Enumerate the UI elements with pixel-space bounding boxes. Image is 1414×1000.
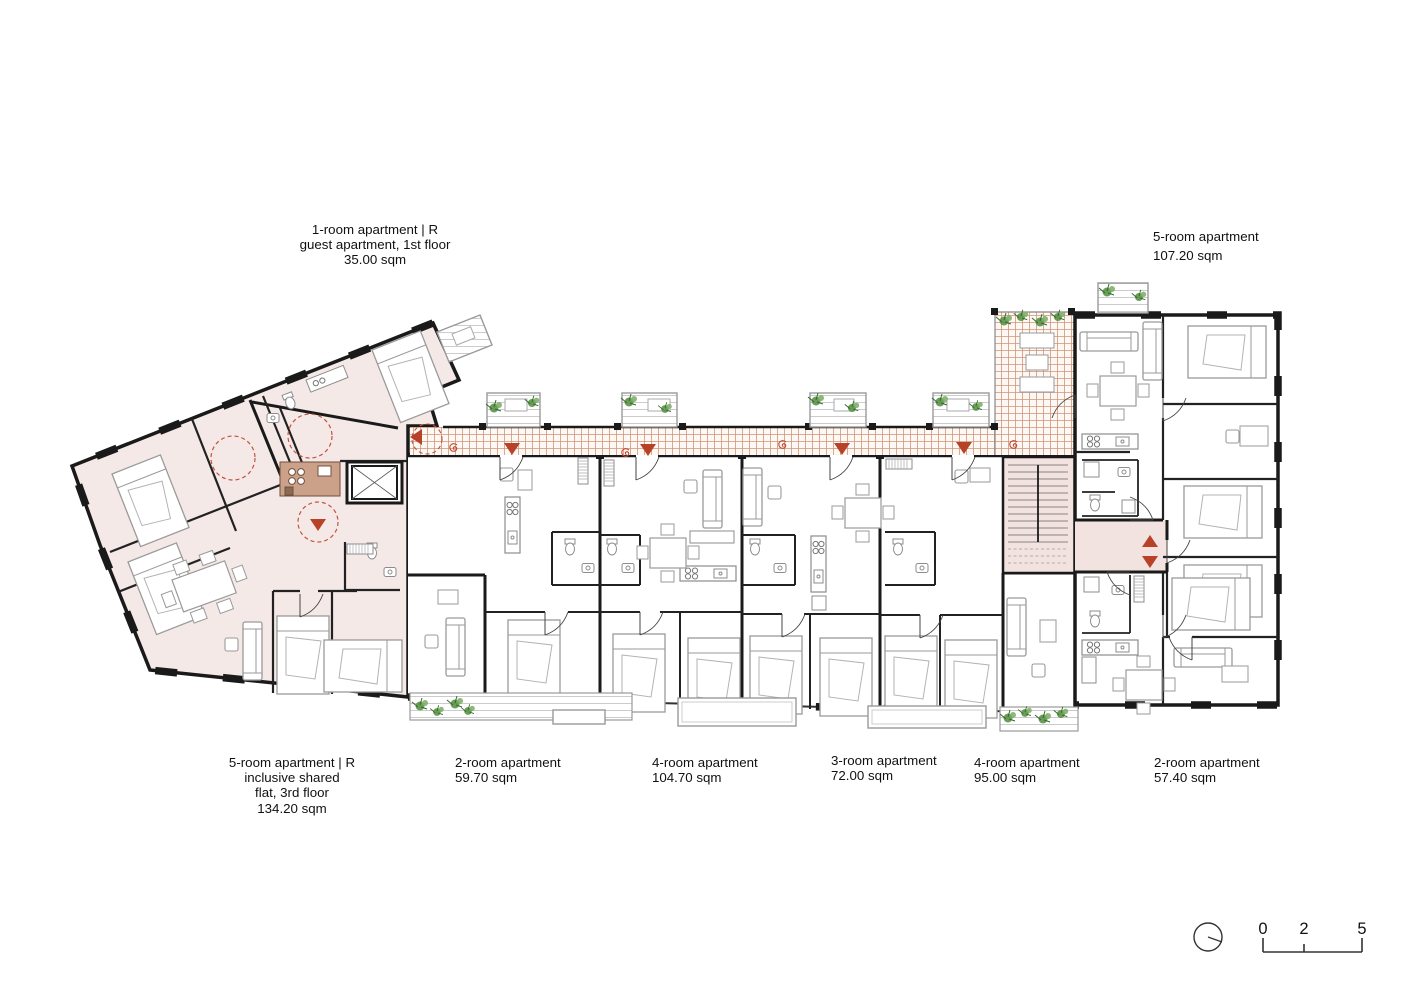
walkway-paving (410, 427, 1000, 455)
label-line: 3-room apartment (831, 753, 937, 768)
floor-plan: 0 2 5 (0, 0, 1414, 1000)
armchair-icon (768, 486, 781, 499)
armchair-icon (225, 638, 238, 651)
shelf-icon (578, 458, 588, 484)
kitchen-counter (680, 566, 736, 581)
label-line: 72.00 sqm (831, 768, 937, 783)
label-3room: 3-room apartment 72.00 sqm (831, 753, 937, 783)
sink-icon (267, 414, 279, 423)
label-line: 4-room apartment (974, 755, 1080, 770)
sofa-icon (1143, 322, 1162, 380)
label-line: 5-room apartment (1153, 227, 1259, 246)
label-2room-b: 2-room apartment 57.40 sqm (1154, 755, 1260, 785)
sofa-icon (243, 622, 262, 680)
right-block (1052, 315, 1278, 714)
label-line: 107.20 sqm (1153, 246, 1259, 265)
bed-icon (885, 636, 937, 714)
toilet-icon (750, 539, 760, 555)
label-2room-a: 2-room apartment 59.70 sqm (455, 755, 561, 785)
label-line: 5-room apartment | R (229, 755, 355, 770)
armchair-icon (684, 480, 697, 493)
scale-tick-5: 5 (1357, 920, 1366, 938)
bed-icon (277, 616, 329, 694)
bed-icon (1172, 578, 1250, 630)
sink-icon (384, 568, 396, 577)
label-line: 95.00 sqm (974, 770, 1080, 785)
label-line: 4-room apartment (652, 755, 758, 770)
label-line: 104.70 sqm (652, 770, 758, 785)
label-5room-apartment: 5-room apartment 107.20 sqm (1153, 227, 1259, 265)
label-line: 2-room apartment (1154, 755, 1260, 770)
armchair-icon (425, 635, 438, 648)
label-line: 57.40 sqm (1154, 770, 1260, 785)
label-line: 35.00 sqm (300, 252, 451, 267)
sofa-icon (743, 468, 762, 526)
shelf-icon (604, 460, 614, 486)
bed-icon (820, 638, 872, 716)
sink-icon (582, 564, 594, 573)
shelf-icon (347, 544, 373, 554)
bed-icon (324, 640, 402, 692)
sink-icon (622, 564, 634, 573)
toilet-icon (893, 539, 903, 555)
shelf-icon (1134, 576, 1144, 602)
label-guest-apartment: 1-room apartment | R guest apartment, 1s… (300, 222, 451, 268)
toilet-icon (1090, 495, 1100, 511)
sink-icon (774, 564, 786, 573)
sofa-icon (446, 618, 465, 676)
shelf-icon (886, 459, 912, 469)
sink-icon (916, 564, 928, 573)
toilet-icon (565, 539, 575, 555)
desk-chair-icon (1226, 430, 1239, 443)
kitchen-counter (280, 462, 340, 496)
scale-tick-0: 0 (1258, 920, 1267, 938)
scale-tick-2: 2 (1299, 920, 1308, 938)
east-stair-core (1003, 457, 1075, 573)
sink-icon (1112, 586, 1124, 595)
label-line: 2-room apartment (455, 755, 561, 770)
toilet-icon (1090, 611, 1100, 627)
kitchen-counter (1082, 434, 1138, 449)
middle-apartments (408, 451, 1075, 718)
kitchen-counter (505, 497, 520, 553)
label-line: 134.20 sqm (229, 801, 355, 816)
label-inclusive-flat: 5-room apartment | R inclusive shared fl… (229, 755, 355, 816)
toilet-icon (607, 539, 617, 555)
bed-icon (1188, 326, 1266, 378)
armchair-icon (1032, 664, 1045, 677)
sofa-icon (1174, 648, 1232, 667)
label-4room-b: 4-room apartment 95.00 sqm (974, 755, 1080, 785)
label-line: 59.70 sqm (455, 770, 561, 785)
label-line: flat, 3rd floor (229, 785, 355, 800)
kitchen-counter (1082, 640, 1138, 655)
label-line: guest apartment, 1st floor (300, 237, 451, 252)
elevator-icon (352, 466, 397, 499)
sofa-icon (1007, 598, 1026, 656)
bed-icon (1184, 486, 1262, 538)
label-line: 1-room apartment | R (300, 222, 451, 237)
label-4room-a: 4-room apartment 104.70 sqm (652, 755, 758, 785)
sink-icon (1118, 468, 1130, 477)
sofa-icon (703, 470, 722, 528)
sofa-icon (1080, 332, 1138, 351)
label-line: inclusive shared (229, 770, 355, 785)
kitchen-counter (811, 536, 826, 592)
